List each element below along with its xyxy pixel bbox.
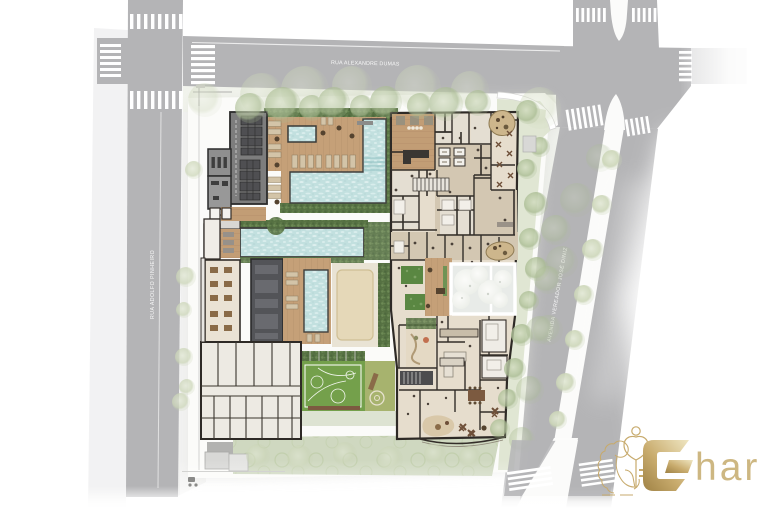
svg-text:har: har xyxy=(695,446,760,489)
svg-text:RUA ADOLFO PINHEIRO: RUA ADOLFO PINHEIRO xyxy=(150,250,156,319)
